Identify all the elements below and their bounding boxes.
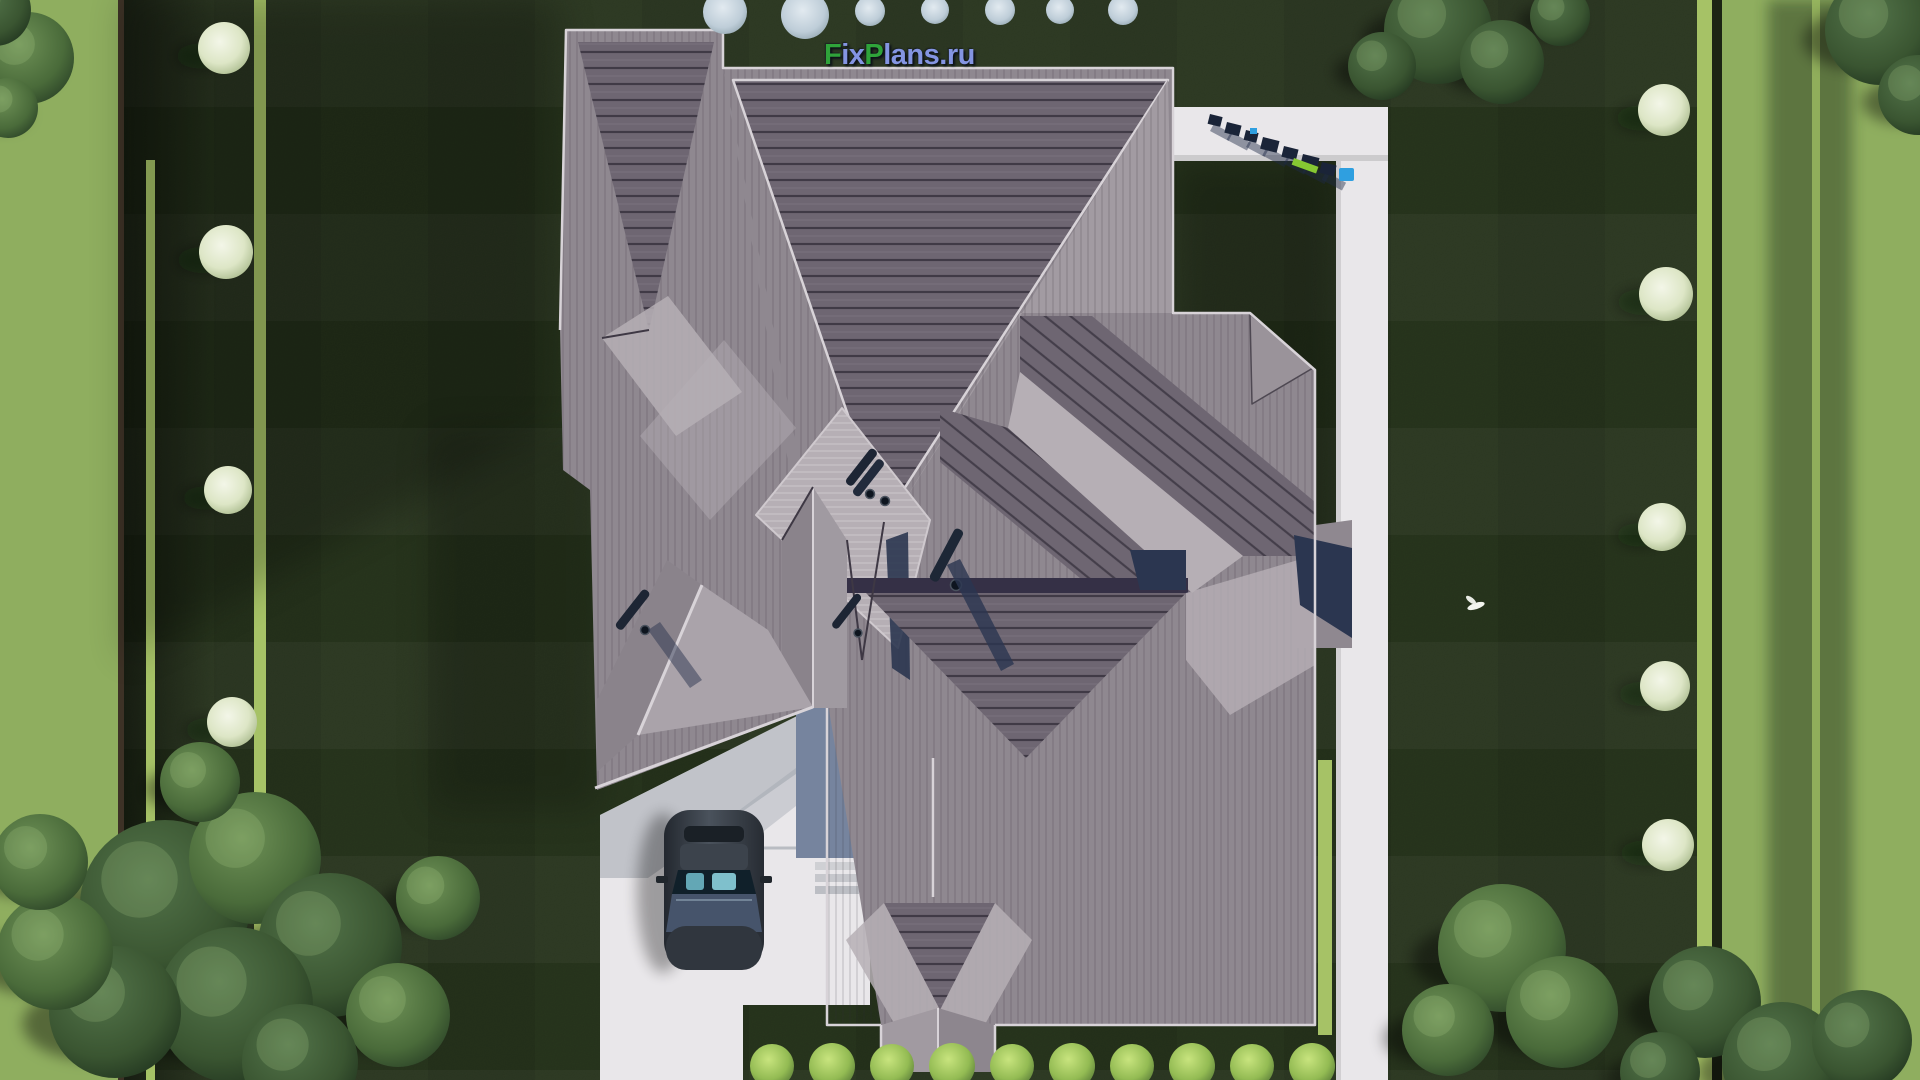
green-tree-highlight <box>101 841 178 918</box>
flue-cap-1 <box>866 490 875 499</box>
right-tree-shadow-band <box>1768 0 1852 1080</box>
white-flowering-tree <box>1642 819 1694 871</box>
car-front-end <box>666 926 762 970</box>
white-flowering-tree <box>1638 84 1690 136</box>
green-tree-highlight <box>1630 1042 1666 1078</box>
car <box>637 810 772 973</box>
aerial-house-render: FixPlans.ru <box>0 0 1920 1080</box>
flue-cap-4 <box>854 629 862 637</box>
white-flowering-tree <box>207 697 257 747</box>
car-mirror-right <box>760 876 772 883</box>
white-flowering-tree <box>198 22 250 74</box>
green-tree-highlight <box>1520 970 1570 1020</box>
watermark-letter-group: ix <box>841 39 864 72</box>
green-tree-highlight <box>11 909 63 961</box>
car-rear-window <box>684 826 744 842</box>
lawn-shade-west-of-house <box>430 430 600 810</box>
right-thin-hedge <box>1812 0 1820 1080</box>
green-tree-highlight <box>257 1019 309 1071</box>
green-tree-highlight <box>1663 960 1713 1010</box>
walkway-side-hedge <box>1318 760 1332 1035</box>
green-tree-highlight <box>1357 41 1388 72</box>
right-fence-shadow <box>1712 0 1722 1080</box>
green-tree-highlight <box>177 947 247 1017</box>
white-flowering-tree <box>1638 503 1686 551</box>
white-flowering-tree <box>199 225 253 279</box>
green-tree-highlight <box>359 976 406 1023</box>
watermark-letter-group: F <box>824 39 841 72</box>
watermark-letter-group: lans.ru <box>883 39 975 72</box>
white-flowering-tree <box>1640 661 1690 711</box>
green-tree-highlight <box>1414 996 1455 1037</box>
car-windshield-glass-right <box>712 873 736 890</box>
green-tree-highlight <box>4 826 47 869</box>
watermark-text: FixPlans.ru <box>824 39 975 72</box>
brand-3d-blue-marker-small <box>1250 128 1257 134</box>
green-tree-highlight <box>1825 1003 1870 1048</box>
green-tree-highlight <box>1454 900 1512 958</box>
flue-cap-2 <box>881 497 890 506</box>
green-tree-highlight <box>1471 31 1509 69</box>
watermark-letter-group: P <box>864 39 883 72</box>
green-tree-highlight <box>1737 1017 1791 1071</box>
white-flowering-tree <box>204 466 252 514</box>
car-mirror-left <box>656 876 668 883</box>
fixplans-watermark: FixPlans.ru <box>824 39 975 72</box>
scene-canvas <box>0 0 1920 1080</box>
car-roof <box>680 844 748 870</box>
white-flowering-tree <box>1639 267 1693 321</box>
car-windshield-glass-left <box>686 873 704 890</box>
green-tree-highlight <box>407 867 445 905</box>
roof-beam-shadow <box>788 578 1188 593</box>
brand-3d-blue-cube <box>1339 168 1354 181</box>
green-tree-highlight <box>170 752 206 788</box>
right-hedge <box>1697 0 1712 1080</box>
